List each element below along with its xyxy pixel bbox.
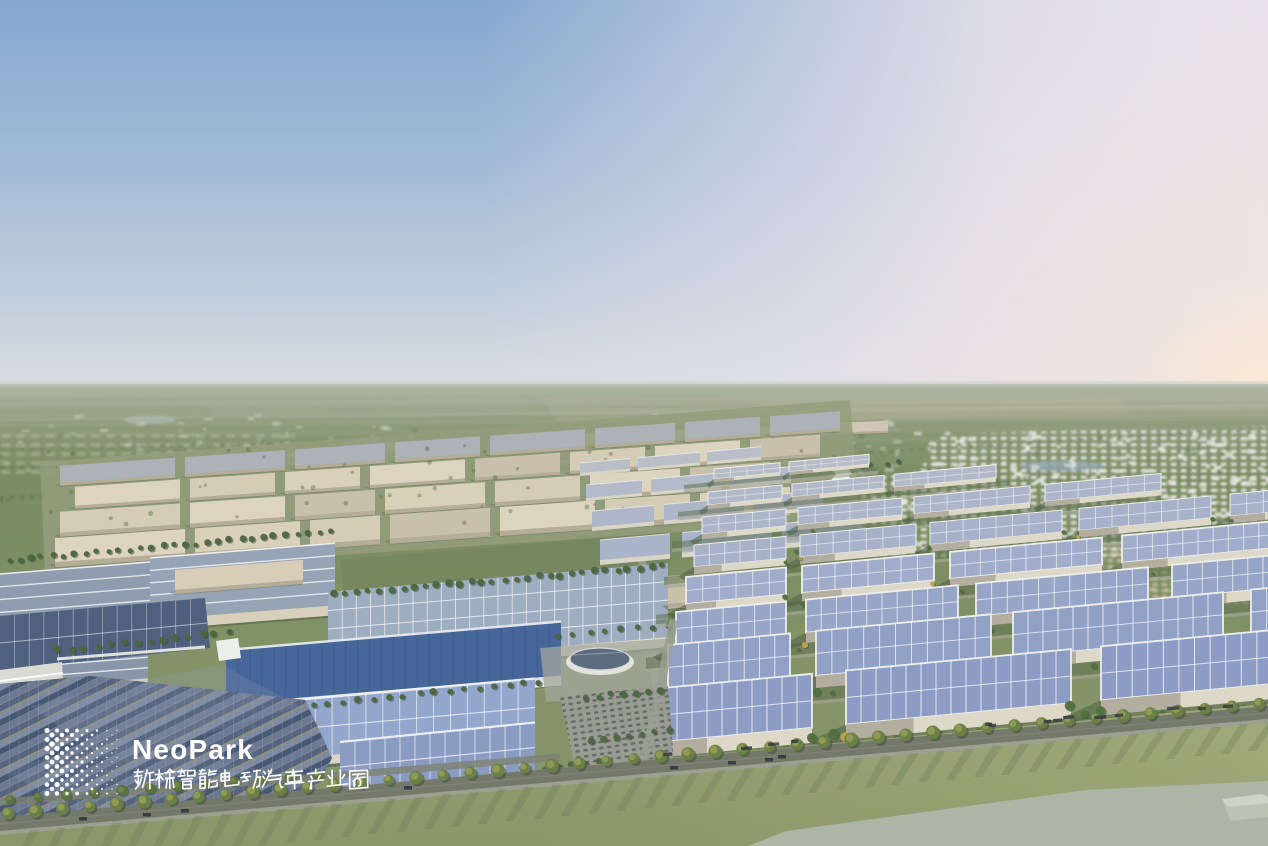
svg-text:NeoPark: NeoPark <box>132 734 254 765</box>
